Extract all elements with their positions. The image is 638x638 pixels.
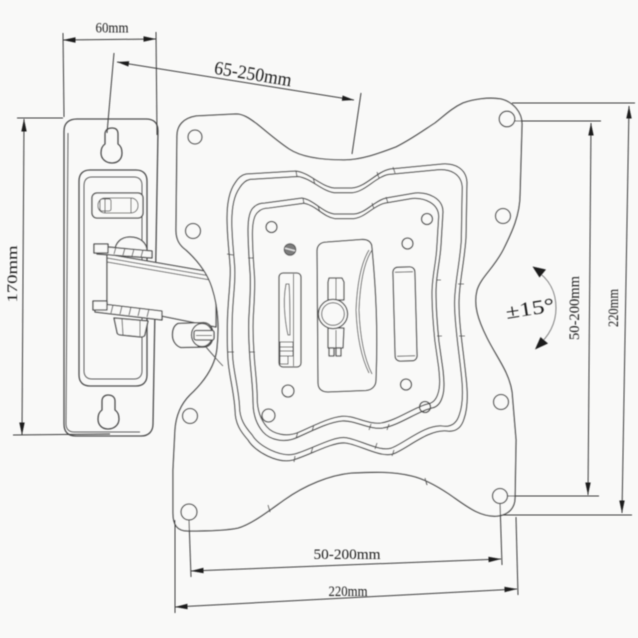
svg-text:220mm: 220mm <box>606 289 622 327</box>
svg-text:60mm: 60mm <box>96 21 129 37</box>
svg-text:50-200mm: 50-200mm <box>567 276 583 340</box>
svg-text:170mm: 170mm <box>5 245 21 302</box>
svg-text:50-200mm: 50-200mm <box>314 547 381 563</box>
